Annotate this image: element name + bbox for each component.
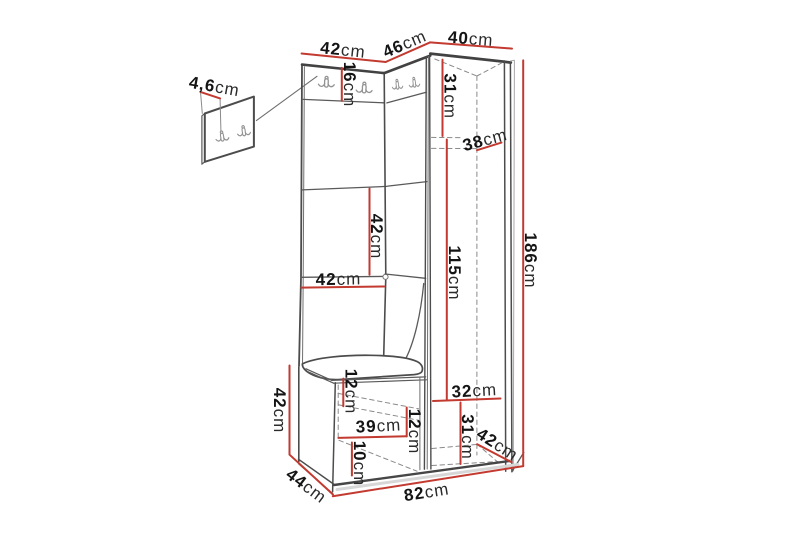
svg-text:16cm: 16cm — [340, 62, 359, 108]
svg-text:186cm: 186cm — [521, 232, 540, 288]
svg-text:31cm: 31cm — [441, 73, 460, 119]
svg-text:42cm: 42cm — [367, 214, 386, 260]
svg-text:32cm: 32cm — [451, 380, 498, 401]
svg-text:42cm: 42cm — [316, 269, 362, 289]
svg-text:12cm: 12cm — [405, 409, 424, 455]
svg-text:115cm: 115cm — [445, 245, 464, 300]
svg-text:10cm: 10cm — [350, 441, 369, 487]
svg-text:39cm: 39cm — [355, 415, 402, 436]
svg-text:42cm: 42cm — [270, 388, 289, 434]
svg-text:12cm: 12cm — [342, 369, 361, 415]
svg-text:40cm: 40cm — [447, 28, 494, 51]
